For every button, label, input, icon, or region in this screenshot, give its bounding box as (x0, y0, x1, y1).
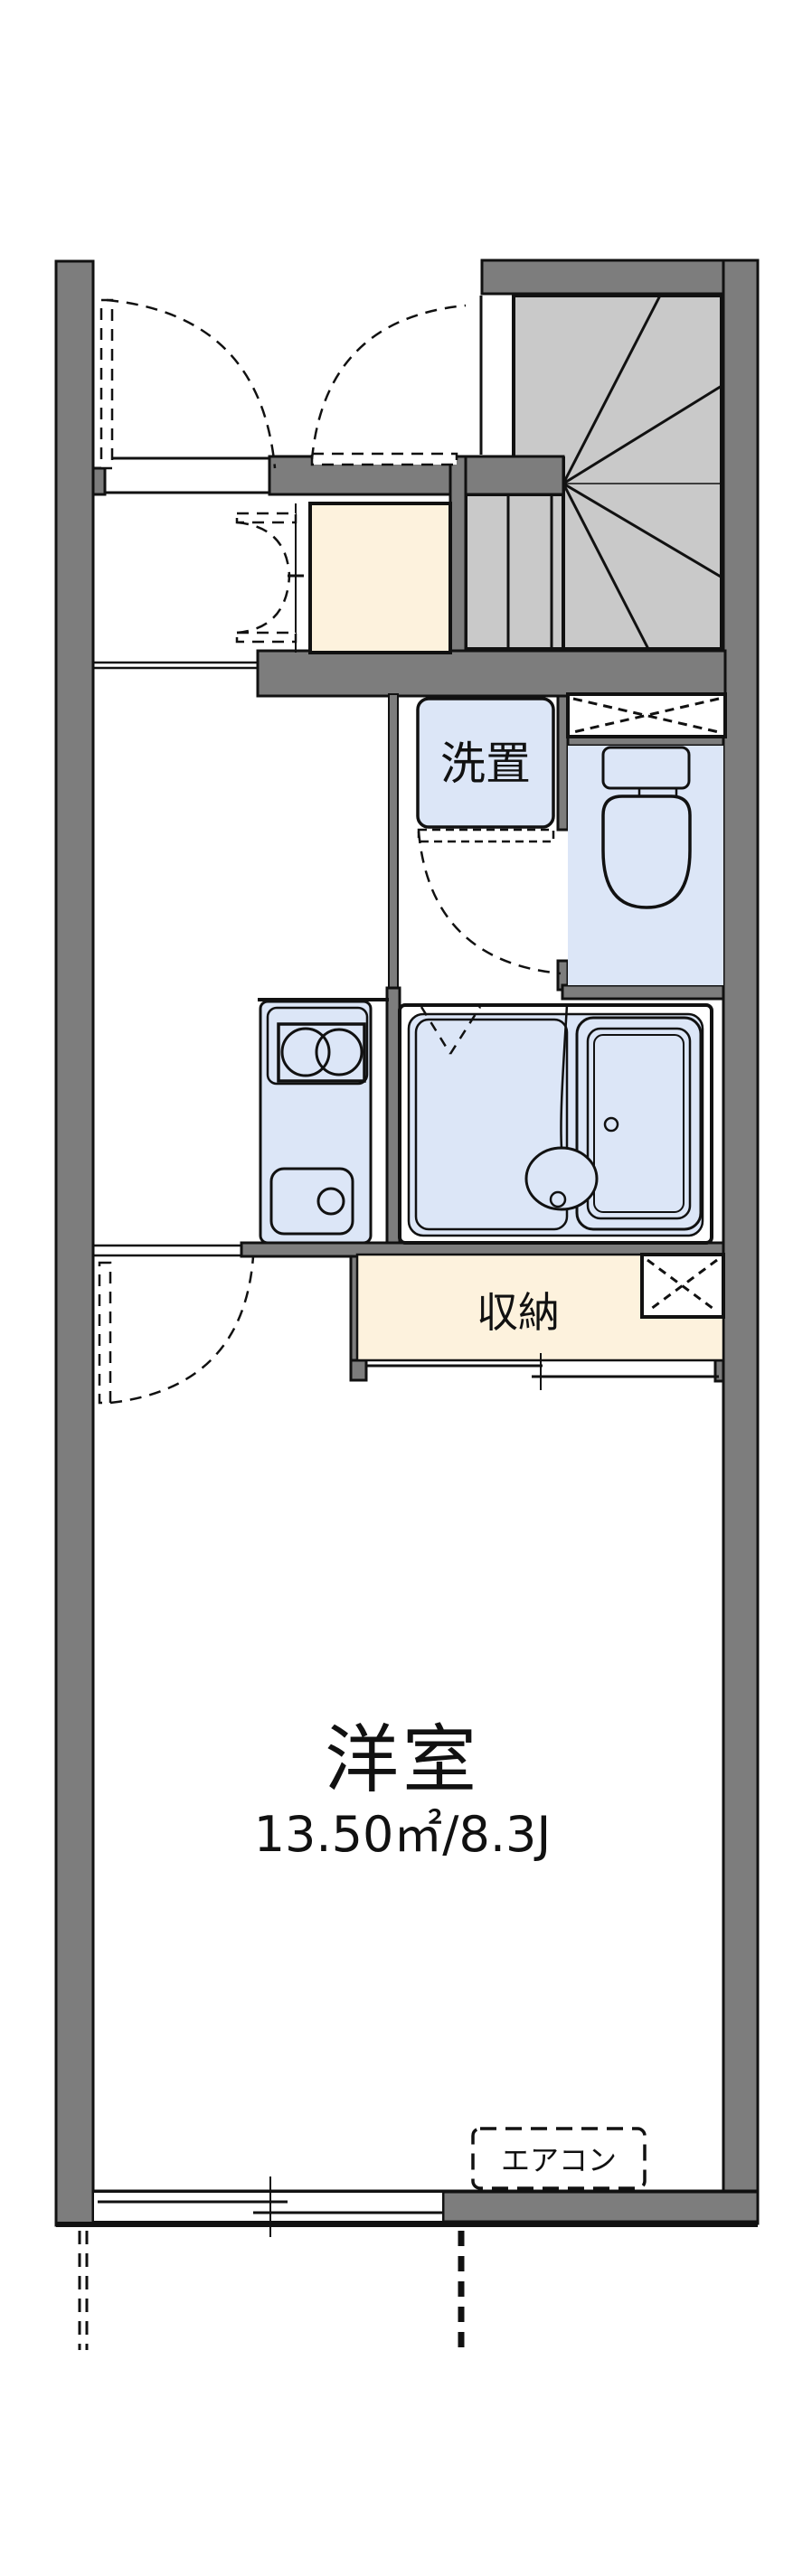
porch-closet-door-leaf (101, 300, 112, 468)
aircon-label: エアコン (501, 2143, 617, 2177)
entrance-door-arc (312, 306, 466, 459)
main-room-area-label: 13.50㎡/8.3J (254, 1806, 552, 1863)
stair-lower-flight (466, 494, 563, 649)
wall-bath-west (387, 988, 400, 1252)
washer-nook: 洗置 (418, 699, 553, 841)
genkan-closet-door-arc (237, 576, 289, 633)
main-room-door-arc (110, 1256, 253, 1403)
toilet-tank-icon (603, 747, 689, 788)
toilet-door-arc (419, 832, 561, 973)
wall-porch-stub (93, 468, 105, 494)
wall-under-genkan-stairs (258, 651, 725, 696)
boundary-dashes (80, 2231, 461, 2350)
wall-washroom-east (389, 694, 398, 990)
wall-slide-end (715, 1360, 723, 1381)
wall-left-outer (56, 261, 93, 2225)
washer-threshold (419, 830, 553, 841)
washer-label: 洗置 (440, 738, 531, 790)
kitchen (258, 1000, 389, 1243)
entrance-door-leaf (312, 454, 457, 465)
floor-plan-page: 洗置 (0, 0, 812, 2576)
wall-bottom-right (443, 2192, 758, 2222)
genkan-floor (310, 503, 450, 653)
genkan-closet-door-arc (237, 522, 289, 576)
wall-toilet-south (562, 985, 723, 999)
main-room-label: 洋室 (325, 1717, 480, 1803)
main-room-door-leaf (99, 1263, 110, 1403)
porch-closet-door-arc (107, 300, 275, 468)
bathroom (400, 1005, 712, 1243)
toilet-room (568, 746, 723, 985)
wall-right-outer (723, 260, 758, 2223)
window-band (93, 2192, 443, 2222)
closet-label: 収納 (477, 1288, 560, 1337)
genkan-closet-door-leaf (237, 513, 296, 522)
toilet-bowl-icon (603, 796, 690, 907)
wall-top-stairs (482, 260, 758, 294)
aircon-unit: エアコン (473, 2129, 645, 2188)
genkan-closet-door-leaf (237, 633, 296, 642)
shaft-box (568, 694, 725, 737)
floor-plan-drawing: 洗置 (0, 0, 812, 2576)
shower-stool-icon (526, 1148, 597, 1209)
wall-closet-west-stub (351, 1360, 366, 1380)
sink-icon (271, 1169, 353, 1234)
